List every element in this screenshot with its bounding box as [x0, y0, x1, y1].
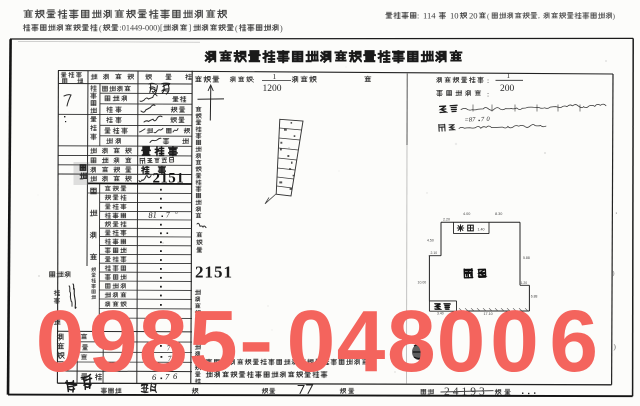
svg-text:6: 6: [549, 292, 598, 390]
svg-text::: :: [417, 12, 419, 21]
svg-text::: :: [487, 89, 489, 98]
svg-text:1: 1: [273, 72, 277, 81]
svg-text:1.20: 1.20: [521, 281, 528, 285]
svg-text:): ): [613, 270, 615, 277]
svg-text:2151: 2151: [153, 171, 185, 187]
svg-text:,: ,: [538, 11, 540, 20]
svg-text:4.50: 4.50: [427, 239, 434, 243]
svg-text:0: 0: [287, 292, 336, 390]
svg-text:(: (: [235, 24, 238, 33]
svg-text:2151: 2151: [195, 263, 233, 282]
svg-text:114: 114: [423, 11, 436, 21]
svg-text::: :: [487, 76, 489, 85]
svg-text:): ): [280, 24, 283, 33]
svg-text:0: 0: [437, 292, 486, 390]
svg-text:4: 4: [337, 292, 386, 390]
svg-text:2.20: 2.20: [443, 218, 450, 222]
svg-text:°: °: [175, 211, 178, 219]
svg-text:1.40: 1.40: [478, 228, 485, 232]
svg-text:8.30: 8.30: [495, 212, 502, 216]
svg-text:81: 81: [148, 210, 157, 220]
svg-text:]: ]: [189, 24, 192, 33]
svg-text:1200: 1200: [263, 84, 282, 94]
svg-text:200: 200: [500, 84, 515, 94]
svg-text:20: 20: [469, 11, 478, 21]
svg-text:1: 1: [507, 72, 511, 80]
svg-text:(: (: [99, 24, 102, 33]
svg-text:4.00: 4.00: [463, 212, 470, 216]
svg-text::: :: [253, 75, 255, 84]
svg-text:10.00: 10.00: [418, 281, 427, 285]
svg-text:10: 10: [450, 11, 459, 21]
svg-text:0: 0: [36, 292, 85, 390]
svg-text:9: 9: [89, 292, 138, 390]
svg-text:=87: =87: [464, 116, 476, 123]
svg-text:5: 5: [189, 292, 238, 390]
svg-text:0: 0: [490, 292, 539, 390]
svg-text:5.88: 5.88: [523, 256, 530, 260]
svg-text:8: 8: [139, 292, 188, 390]
svg-text::01449-000)[: :01449-000)[: [120, 24, 163, 33]
svg-text:8: 8: [387, 292, 436, 390]
svg-text:2.10: 2.10: [431, 251, 438, 255]
